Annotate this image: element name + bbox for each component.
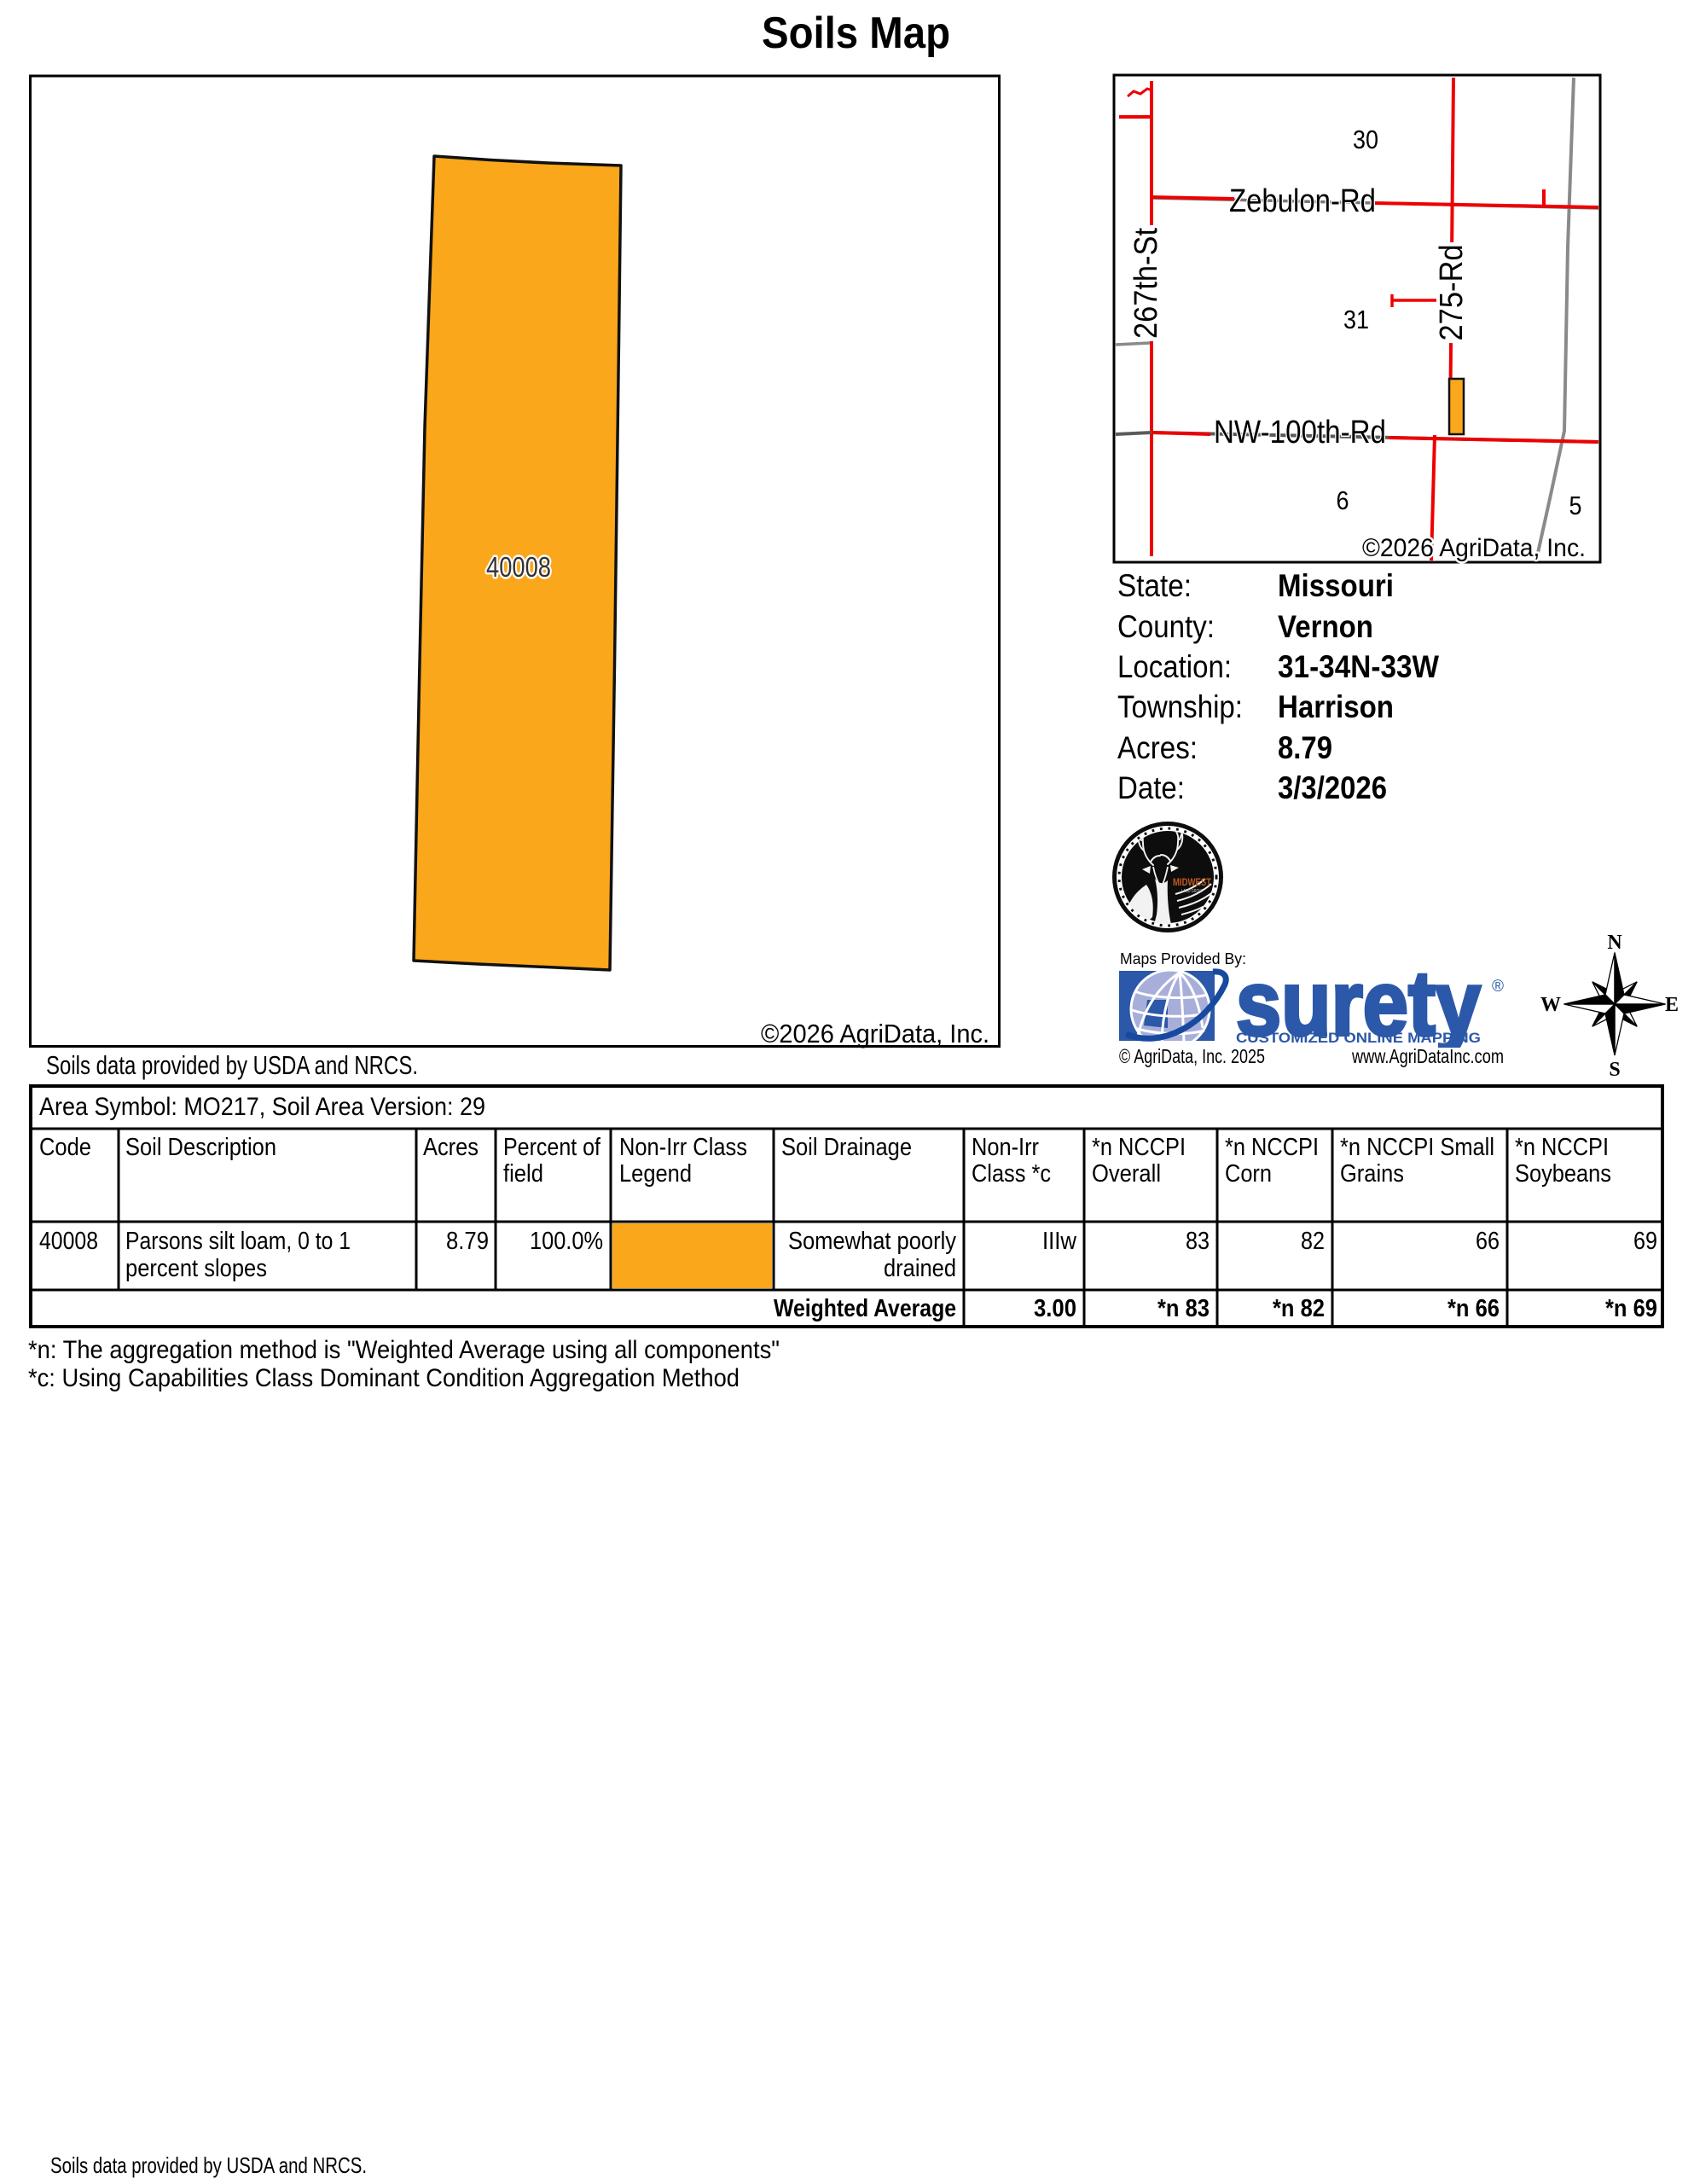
svg-text:Soil Drainage: Soil Drainage (781, 1134, 912, 1161)
svg-text:IIIw: IIIw (1042, 1228, 1077, 1255)
svg-text:Date:: Date: (1117, 770, 1185, 805)
svg-text:Somewhat poorly: Somewhat poorly (788, 1228, 956, 1255)
svg-text:40008: 40008 (486, 551, 551, 583)
svg-text:Area Symbol: MO217, Soil Area: Area Symbol: MO217, Soil Area Version: 2… (39, 1093, 485, 1121)
svg-text:40008: 40008 (39, 1228, 98, 1255)
svg-text:*n 66: *n 66 (1447, 1295, 1500, 1322)
svg-text:Weighted Average: Weighted Average (774, 1295, 956, 1322)
svg-text:©2026 AgriData, Inc.: ©2026 AgriData, Inc. (1362, 534, 1586, 562)
svg-text:Township:: Township: (1117, 688, 1243, 724)
svg-text:Parsons silt loam, 0 to 1: Parsons silt loam, 0 to 1 (125, 1228, 351, 1255)
svg-text:NW-100th-Rd: NW-100th-Rd (1214, 415, 1386, 450)
svg-text:*n 82: *n 82 (1273, 1295, 1325, 1322)
svg-text:Vernon: Vernon (1278, 608, 1373, 644)
svg-text:Zebulon-Rd: Zebulon-Rd (1229, 183, 1376, 219)
svg-text:Soils data provided by USDA an: Soils data provided by USDA and NRCS. (50, 2152, 367, 2178)
svg-text:LAND GROUP: LAND GROUP (1181, 889, 1204, 894)
svg-text:State:: State: (1117, 567, 1192, 603)
svg-text:www.AgriDataInc.com: www.AgriDataInc.com (1351, 1045, 1504, 1067)
svg-text:267th-St: 267th-St (1128, 228, 1164, 339)
svg-text:W: W (1540, 994, 1561, 1016)
svg-text:*c: Using Capabilities Class D: *c: Using Capabilities Class Dominant Co… (28, 1364, 740, 1392)
svg-text:Soybeans: Soybeans (1515, 1160, 1611, 1188)
svg-text:Code: Code (39, 1134, 91, 1161)
svg-text:30: 30 (1353, 125, 1378, 154)
svg-text:275-Rd: 275-Rd (1434, 245, 1470, 341)
svg-text:*n NCCPI Small: *n NCCPI Small (1340, 1134, 1494, 1161)
svg-text:Missouri: Missouri (1278, 567, 1394, 603)
svg-text:Non-Irr: Non-Irr (972, 1134, 1039, 1161)
svg-text:*n NCCPI: *n NCCPI (1092, 1134, 1186, 1161)
svg-text:82: 82 (1301, 1228, 1325, 1255)
svg-text:*n 83: *n 83 (1157, 1295, 1210, 1322)
svg-text:6: 6 (1337, 485, 1349, 515)
svg-text:*n: The aggregation method is: *n: The aggregation method is "Weighted … (28, 1336, 780, 1364)
svg-text:Non-Irr Class: Non-Irr Class (619, 1134, 747, 1161)
svg-text:Percent of: Percent of (503, 1134, 601, 1161)
svg-text:Soil Description: Soil Description (125, 1134, 276, 1161)
svg-text:Location:: Location: (1117, 648, 1232, 684)
svg-text:MIDWEST: MIDWEST (1173, 876, 1212, 888)
svg-text:3/3/2026: 3/3/2026 (1278, 770, 1387, 805)
svg-text:Soils data provided by USDA an: Soils data provided by USDA and NRCS. (46, 1051, 418, 1080)
svg-text:Harrison: Harrison (1278, 688, 1394, 724)
svg-text:69: 69 (1633, 1228, 1657, 1255)
svg-text:66: 66 (1476, 1228, 1500, 1255)
svg-text:percent slopes: percent slopes (125, 1255, 267, 1282)
svg-text:County:: County: (1117, 608, 1215, 644)
svg-text:E: E (1665, 994, 1679, 1016)
svg-text:Grains: Grains (1340, 1160, 1404, 1188)
svg-text:S: S (1609, 1059, 1620, 1081)
svg-text:CUSTOMIZED ONLINE MAPPING: CUSTOMIZED ONLINE MAPPING (1236, 1030, 1481, 1046)
svg-text:*n NCCPI: *n NCCPI (1225, 1134, 1319, 1161)
svg-text:8.79: 8.79 (1278, 729, 1332, 765)
svg-text:Class *c: Class *c (972, 1160, 1051, 1188)
svg-text:*n NCCPI: *n NCCPI (1515, 1134, 1609, 1161)
svg-text:Corn: Corn (1225, 1160, 1272, 1188)
svg-text:83: 83 (1186, 1228, 1210, 1255)
svg-text:31: 31 (1343, 305, 1369, 334)
svg-text:field: field (503, 1160, 543, 1188)
svg-text:Acres: Acres (423, 1134, 479, 1161)
svg-text:5: 5 (1569, 491, 1582, 520)
svg-text:Maps Provided By:: Maps Provided By: (1120, 950, 1246, 967)
svg-text:3.00: 3.00 (1034, 1295, 1076, 1322)
svg-text:© AgriData, Inc. 2025: © AgriData, Inc. 2025 (1119, 1045, 1265, 1067)
svg-text:®: ® (1492, 978, 1504, 996)
svg-text:Acres:: Acres: (1117, 729, 1198, 765)
svg-text:Soils Map: Soils Map (762, 9, 950, 58)
svg-text:31-34N-33W: 31-34N-33W (1278, 648, 1440, 684)
svg-text:100.0%: 100.0% (530, 1228, 603, 1255)
svg-text:Overall: Overall (1092, 1160, 1161, 1188)
svg-text:Legend: Legend (619, 1160, 692, 1188)
svg-text:8.79: 8.79 (446, 1228, 489, 1255)
svg-text:©2026 AgriData, Inc.: ©2026 AgriData, Inc. (761, 1019, 989, 1048)
svg-text:N: N (1607, 932, 1622, 954)
svg-text:drained: drained (884, 1255, 956, 1282)
svg-text:*n 69: *n 69 (1605, 1295, 1657, 1322)
